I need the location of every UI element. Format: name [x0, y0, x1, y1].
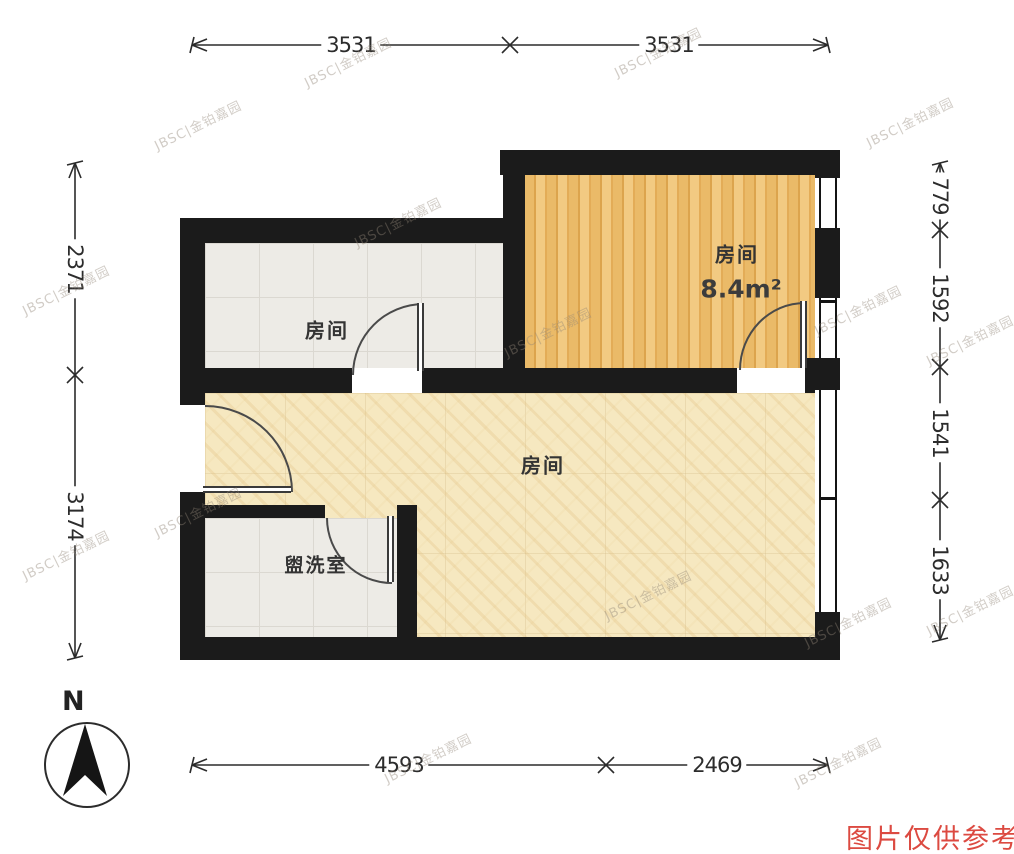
dim-right-2: 1592 — [928, 268, 952, 327]
compass-north-label: N — [62, 686, 85, 717]
floorplan-canvas: 房间 房间 8.4m² 房间 盥洗室 — [0, 0, 1014, 854]
room-top-left-label: 房间 — [305, 315, 349, 344]
dim-top-1: 3531 — [321, 33, 380, 57]
main-room-label: 房间 — [521, 450, 565, 479]
door-panel-entrance — [203, 486, 291, 493]
washroom-wall-right — [397, 505, 417, 645]
pillar-right-1 — [815, 228, 840, 298]
dim-right-3: 1541 — [928, 403, 952, 462]
wall-partition-h-b — [422, 368, 737, 393]
wall-partition-h-c — [805, 368, 815, 393]
pillar-right-3 — [815, 612, 840, 660]
compass — [44, 722, 130, 808]
wall-bottom — [180, 637, 840, 660]
dim-left-1: 2371 — [63, 239, 87, 298]
room-top-left-floor — [205, 243, 505, 368]
reference-only-note: 图片仅供参考 — [846, 817, 1014, 854]
wall-step-vertical — [503, 150, 525, 393]
washroom-wall-top — [180, 505, 325, 518]
watermark: JBSC|金铂嘉园 — [791, 732, 885, 791]
dim-bottom-2: 2469 — [687, 753, 746, 777]
dim-right-1: 779 — [928, 172, 952, 219]
door-panel-washroom — [387, 516, 394, 582]
dim-bottom-1: 4593 — [369, 753, 428, 777]
wall-partition-h-a — [205, 368, 352, 393]
watermark: JBSC|金铂嘉园 — [151, 95, 245, 154]
door-panel-room-top-left — [417, 303, 424, 371]
room-top-right-area: 8.4m² — [700, 275, 781, 304]
room-top-right-label: 房间 — [715, 239, 759, 268]
wall-left-upper — [180, 218, 205, 405]
wall-top-left — [180, 218, 525, 243]
washroom-label: 盥洗室 — [284, 551, 347, 578]
dim-top-2: 3531 — [639, 33, 698, 57]
watermark: JBSC|金铂嘉园 — [863, 92, 957, 151]
door-panel-room-top-right — [800, 301, 807, 368]
wall-top-right — [500, 150, 840, 175]
wall-right-top-corner — [815, 150, 840, 178]
dim-left-2: 3174 — [63, 486, 87, 545]
dim-right-4: 1633 — [928, 540, 952, 599]
window-mullion — [819, 300, 837, 303]
window-mullion — [819, 497, 837, 500]
